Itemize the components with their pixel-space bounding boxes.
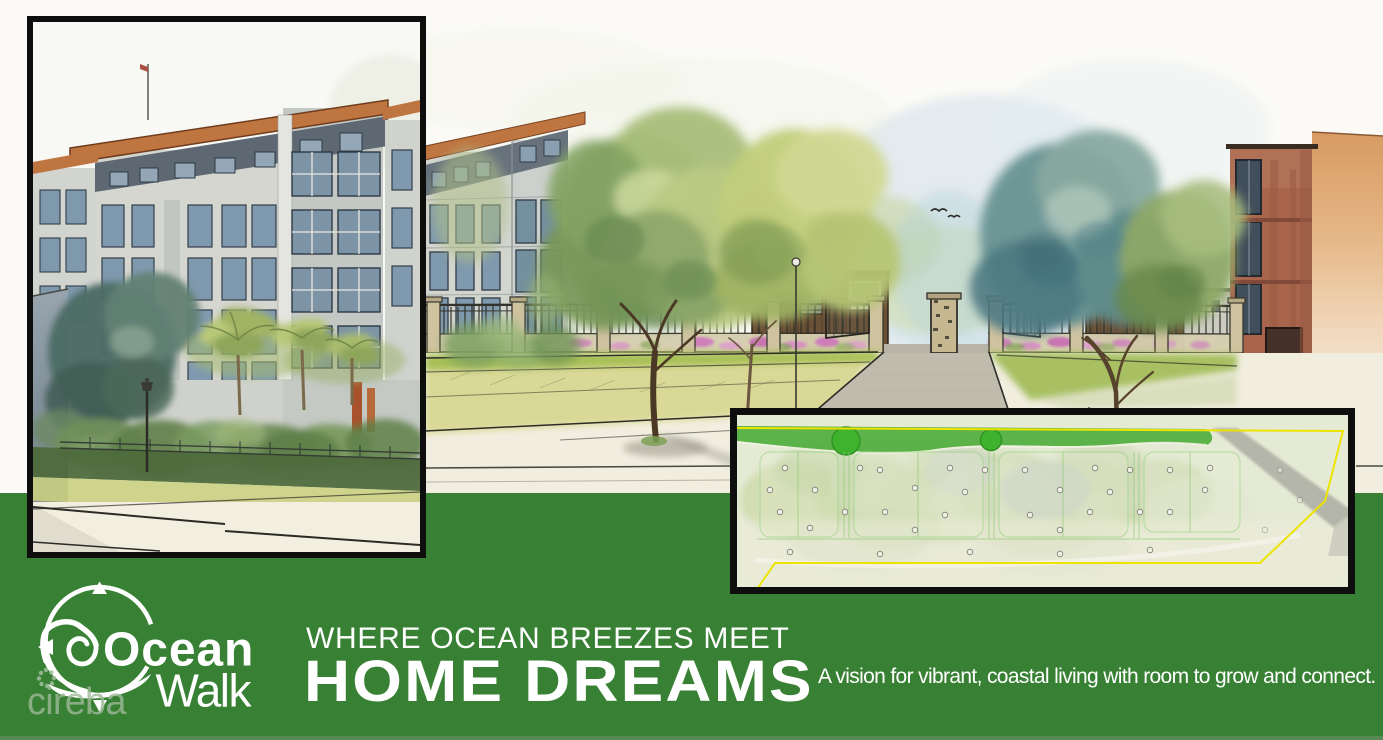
- svg-text:cireba: cireba: [27, 681, 127, 723]
- svg-text:Walk: Walk: [156, 665, 253, 717]
